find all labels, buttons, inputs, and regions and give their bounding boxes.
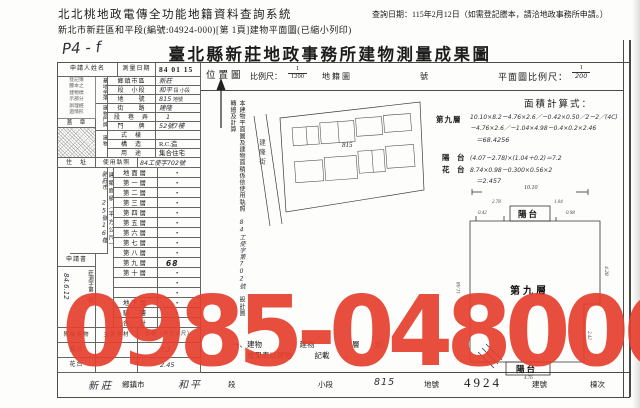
plan-dim-a: 2.78 (492, 200, 501, 205)
site-row-value: 新莊 (159, 77, 172, 85)
site-row-suffix: 段 小段 (174, 89, 190, 94)
building-row-value (156, 131, 201, 140)
floor-label: 第五層 (114, 218, 158, 228)
plan-dim-d: 0.98 (566, 211, 575, 216)
address-label: 住 址 (58, 158, 96, 168)
building-row-value: 集合住宅 (156, 149, 201, 158)
plan-scale-label: 平面圖比例尺： (498, 70, 568, 83)
hand-code: P4 - f (62, 38, 102, 58)
floor-label: 第九層 (114, 258, 158, 268)
door-row-value: 52號7樓 (159, 122, 184, 130)
site-row-value: 和平 (159, 86, 172, 94)
map-scale-fraction: 1 1200 (288, 66, 307, 81)
site-row-suffix: 地號 (173, 98, 183, 103)
door-row-label: 段 巷 弄 (108, 113, 156, 122)
calc-label-planter: 花 台 (442, 164, 465, 175)
door-row-value: 1 (166, 113, 170, 121)
door-row-value: 建隆 (159, 104, 172, 112)
map-scale-label: 比例尺： (250, 71, 282, 82)
survey-date-label: 測量日期 (118, 63, 156, 77)
plan-scale-fraction: 1 200 (572, 65, 590, 80)
scanned-survey-document: 北北桃地政電傳全功能地籍資料查詢系統 新北市新莊區和平段(編號:04924-00… (0, 0, 640, 408)
building-row-label: 用 途 (108, 149, 156, 158)
site-row-value: 815 (159, 95, 171, 103)
seal-label: 蓋 章 (58, 119, 96, 128)
floor-label: 第一層 (114, 178, 158, 188)
plan-scale-denominator: 200 (572, 72, 590, 80)
border-bottom (57, 397, 630, 398)
floor-label: 第六層 (114, 228, 158, 238)
floor-value: • (158, 168, 201, 178)
calc-label-balcony: 陽 台 (442, 152, 465, 163)
applicant-label: 申請人姓名 (58, 63, 118, 77)
building-row-value: R.C.造 (156, 140, 201, 149)
floor-value-ninth: 68 •33 (158, 258, 201, 268)
floor-value: • (158, 188, 201, 198)
floor-label: 第二層 (114, 188, 158, 198)
floor-label: 第三層 (114, 198, 158, 208)
seal-stamp-area (58, 128, 96, 158)
application-label: 申請書 (58, 254, 96, 267)
calc-line: 10.10×8.2－4.76×2.6／－0.42×0.50／2－2／(4C) (470, 112, 618, 121)
site-group-label: 基地坐落 (96, 77, 108, 104)
cadastral-sheet-label: 地籍圖 (322, 71, 352, 82)
north-arrow-icon (213, 78, 229, 130)
map-parcel-number: 815 (342, 141, 353, 149)
floor-label: 第四層 (114, 208, 158, 218)
calc-line: 8.74×0.98－0.300×0.56×2 (470, 165, 552, 174)
floor-value: • (158, 178, 201, 188)
map-street-name: 建隆街 (258, 138, 266, 168)
floor-value: • (158, 238, 201, 248)
map-scale-numerator: 1 (288, 66, 307, 73)
map-scale-denominator: 1200 (288, 73, 307, 81)
survey-date-value: 84 01 15 (156, 63, 201, 77)
memo-line: 過情形 (58, 110, 95, 116)
site-row-label: 地 號 (108, 95, 156, 104)
building-row-label: 式 樣 (108, 131, 156, 140)
building-group-label: 建物 (96, 131, 108, 158)
license-label: 使用執照 (96, 158, 138, 168)
system-title: 北北桃地政電傳全功能地籍資料查詢系統 (58, 6, 292, 22)
doc-subtitle: 新北市新莊區和平段(編號:04924-000)[第 1頁]建物平面圖(已縮小列印… (58, 23, 352, 36)
plan-scale-numerator: 1 (572, 65, 590, 72)
floor-label: 地面層 (114, 168, 158, 178)
side-note-printed-1: 本建物平面圖及建物面積係依使用執照 (238, 100, 244, 212)
calc-line: (4.07－2.78)×(1.04＋0.2)＝7.2 (470, 153, 562, 162)
plan-dim-b: 1.04 (554, 200, 563, 205)
door-row-label: 門 牌 (108, 122, 156, 131)
rule-under-scale-row (200, 90, 623, 91)
memo-cell: 登記簿 謄本之 建物標 示部分 辦理經 過情形 (58, 77, 96, 119)
calc-line: －4.76×2.6／－1.04×4.98－0.4×0.2×2.46 (470, 123, 596, 132)
building-row-label: 構 造 (108, 140, 156, 149)
door-group-label: 建物門牌 (96, 104, 108, 131)
floor-value: • (158, 218, 201, 228)
site-row-label: 鄉鎮市區 (108, 77, 156, 86)
calc-label-ninth-floor: 第九層 (436, 114, 462, 125)
floor-label: 第八層 (114, 248, 158, 258)
plan-balcony-top-label: 陽台 (518, 209, 539, 219)
floor-value: • (158, 228, 201, 238)
floor-value: • (158, 248, 201, 258)
floor-label: 第七層 (114, 238, 158, 248)
query-date: 查詢日期：115年2月12日（如需登記謄本，請洽地政事務所申請。） (372, 9, 638, 20)
license-value: 84工使字702號 (138, 158, 201, 168)
sheet-number-label: 號 (420, 71, 428, 82)
door-row-label: 街 路 (108, 104, 156, 113)
red-watermark-phone-number: 0985-048006 (62, 283, 640, 380)
area-calc-title: 面積計算式： (524, 96, 593, 110)
plan-dim-top: 10.10 (524, 185, 538, 191)
calc-result: ＝68.4256 (476, 134, 509, 144)
site-row-label: 段 小段 (108, 86, 156, 95)
floor-value: • (158, 208, 201, 218)
plan-dim-c: 0.42 (478, 211, 487, 216)
floor-value: • (158, 198, 201, 208)
